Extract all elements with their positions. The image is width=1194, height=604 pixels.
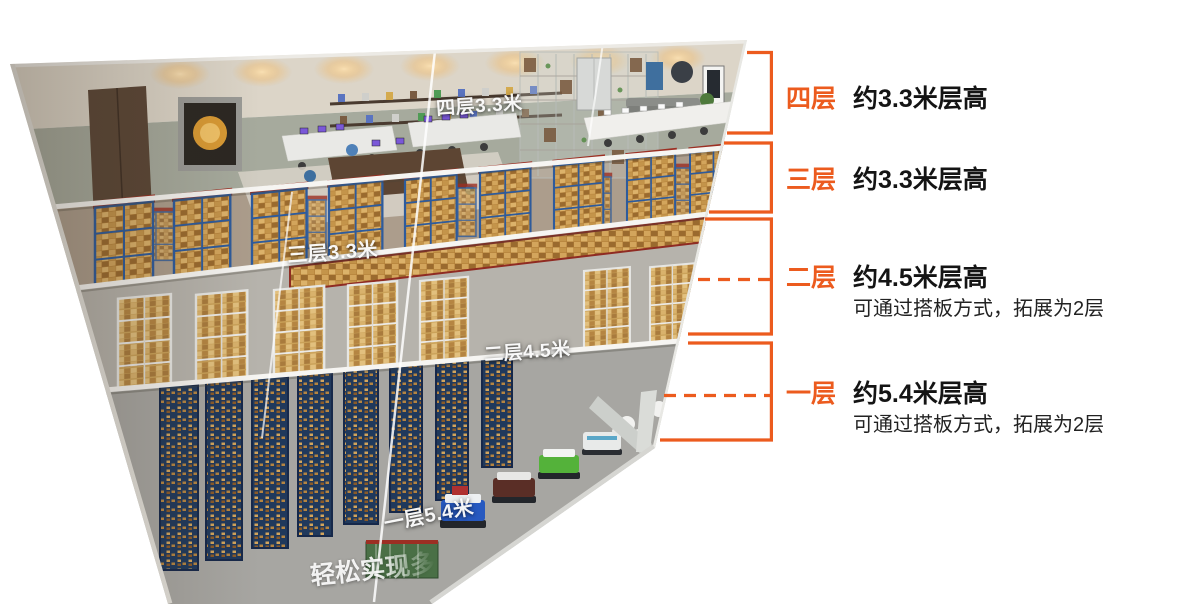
floor1-height: 约5.4米层高 (853, 380, 1104, 408)
floor3-label: 三层 (786, 166, 836, 194)
floor4-height: 约3.3米层高 (853, 85, 988, 113)
annotation-floor2: 二层 约4.5米层高 可通过搭板方式，拓展为2层 (786, 264, 1104, 321)
floor3-height: 约3.3米层高 (853, 166, 988, 194)
building-interior (0, 0, 747, 604)
annotation-floor4: 四层 约3.3米层高 (786, 85, 988, 113)
wall-clock (671, 61, 693, 83)
bracket-floor1 (660, 343, 771, 440)
floor2-height: 约4.5米层高 (853, 264, 1104, 292)
annotation-floor1: 一层 约5.4米层高 可通过搭板方式，拓展为2层 (786, 380, 1104, 437)
floor4-label: 四层 (786, 85, 836, 113)
agv-dark-icon (492, 472, 536, 503)
warehouse-floors-infographic: 四层3.3米 三层3.3米 二层4.5米 一层5.4米 轻松实现多 四层 约3.… (0, 0, 1194, 604)
annotation-floor3: 三层 约3.3米层高 (786, 166, 988, 194)
wall-poster (646, 62, 663, 90)
floor1-label: 一层 (786, 380, 836, 408)
agv-green-icon (538, 449, 580, 479)
floor2-label: 二层 (786, 264, 836, 292)
floor1-note: 可通过搭板方式，拓展为2层 (853, 414, 1104, 437)
floor2-note: 可通过搭板方式，拓展为2层 (853, 298, 1104, 321)
agv-white-icon (582, 432, 622, 455)
